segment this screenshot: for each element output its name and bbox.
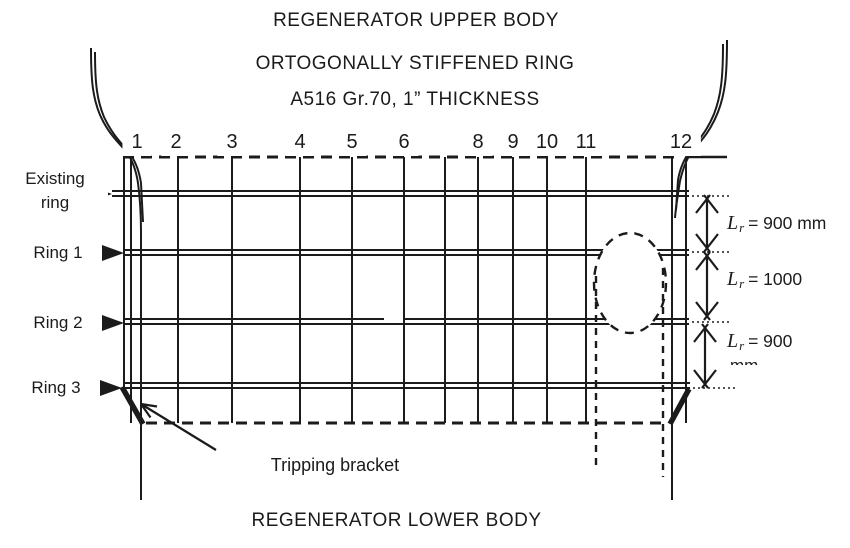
dimension-value: = 900 xyxy=(748,331,792,351)
dimension-value: = 1000 xyxy=(748,269,802,289)
ring-subtitle-line1: ORTOGONALLY STIFFENED RING xyxy=(200,53,630,75)
lr-symbol: L xyxy=(727,212,738,234)
dimension-arrow-1000 xyxy=(696,252,718,320)
dimension-clipped-mm: mm xyxy=(730,356,758,365)
dimension-value: = 900 mm xyxy=(748,213,826,233)
stiffener-number-6: 6 xyxy=(389,128,418,156)
stiffener-number-11: 11 xyxy=(567,128,606,156)
ring-material-line: A516 Gr.70, 1” THICKNESS xyxy=(200,89,630,111)
ring1-label: Ring 1 xyxy=(14,237,102,269)
existing-ring-line xyxy=(112,191,689,196)
ring-subtitle-box: ORTOGONALLY STIFFENED RING A516 Gr.70, 1… xyxy=(200,46,630,118)
lr-symbol: L xyxy=(727,330,738,352)
manway-ellipse xyxy=(594,233,666,333)
dimension-label-900mm: Lr = 900 mm xyxy=(727,210,826,236)
dimension-label-1000: Lr = 1000 xyxy=(727,266,802,292)
stiffener-number-1: 1 xyxy=(122,128,151,156)
lr-subscript: r xyxy=(739,276,744,291)
stiffener-number-10: 10 xyxy=(527,128,567,156)
stiffener-number-5: 5 xyxy=(337,128,366,156)
existing-ring-label: Existing ring xyxy=(2,162,108,220)
panel-right-edge xyxy=(672,158,686,500)
stiffener-number-2: 2 xyxy=(161,128,190,156)
ring2-label: Ring 2 xyxy=(14,307,102,339)
stiffener-number-12: 12 xyxy=(661,128,701,156)
stiffener-number-9: 9 xyxy=(498,128,527,156)
existing-ring-label-line1: Existing xyxy=(2,167,108,191)
dimension-arrow-900 xyxy=(694,324,716,388)
lr-subscript: r xyxy=(739,338,744,353)
ring1-arrow xyxy=(102,245,124,261)
stiffener-number-3: 3 xyxy=(217,128,246,156)
ring3-arrow xyxy=(100,380,122,396)
tripping-bracket-label: Tripping bracket xyxy=(218,449,452,481)
dimension-arrow-900mm xyxy=(696,195,718,252)
lr-subscript: r xyxy=(739,220,744,235)
ring3-label: Ring 3 xyxy=(12,372,100,404)
tripping-bracket-left xyxy=(122,387,143,424)
ring3-line xyxy=(124,383,690,388)
diagram-canvas: REGENERATOR UPPER BODY ORTOGONALLY STIFF… xyxy=(0,0,850,548)
lower-body-title: REGENERATOR LOWER BODY xyxy=(193,503,600,539)
stiffener-number-8: 8 xyxy=(463,128,492,156)
stiffener-number-4: 4 xyxy=(285,128,314,156)
dimension-label-900: Lr = 900 xyxy=(727,328,792,354)
lr-symbol: L xyxy=(727,268,738,290)
upper-body-title: REGENERATOR UPPER BODY xyxy=(207,6,625,36)
existing-ring-label-line2: ring xyxy=(2,191,108,215)
ring2-arrow xyxy=(102,315,124,331)
